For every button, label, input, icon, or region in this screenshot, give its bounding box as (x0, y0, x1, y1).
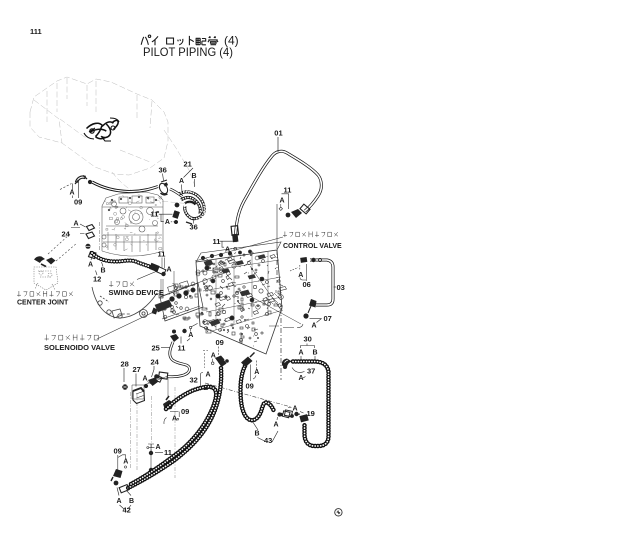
svg-text:A: A (312, 323, 317, 330)
svg-text:11: 11 (213, 237, 221, 246)
svg-text:A: A (167, 267, 172, 274)
svg-text:A: A (172, 415, 177, 422)
svg-text:A: A (188, 332, 193, 339)
svg-text:A: A (165, 219, 170, 226)
svg-text:B: B (313, 350, 318, 357)
svg-text:09: 09 (216, 338, 224, 347)
svg-text:A: A (88, 262, 93, 269)
svg-text:25: 25 (152, 344, 160, 353)
svg-text:111: 111 (30, 27, 42, 36)
svg-text:A: A (179, 178, 184, 185)
svg-text:28: 28 (121, 360, 129, 369)
svg-text:09: 09 (74, 198, 82, 207)
svg-text:12: 12 (93, 275, 101, 284)
svg-text:B: B (204, 385, 209, 392)
svg-text:36: 36 (159, 166, 167, 175)
svg-text:B: B (129, 498, 134, 505)
svg-text:30: 30 (304, 335, 312, 344)
svg-text:09: 09 (181, 407, 189, 416)
svg-text:A: A (274, 422, 279, 429)
svg-text:A: A (225, 247, 230, 254)
svg-text:CENTER JOINT: CENTER JOINT (17, 299, 69, 306)
svg-text:32: 32 (190, 376, 198, 385)
svg-text:06: 06 (303, 280, 311, 289)
svg-text:A: A (254, 369, 259, 376)
svg-text:24: 24 (151, 358, 160, 367)
svg-text:07: 07 (324, 314, 332, 323)
svg-text:A: A (299, 375, 304, 382)
svg-text:CONTROL VALVE: CONTROL VALVE (283, 243, 342, 250)
svg-text:11: 11 (151, 210, 159, 219)
svg-text:A: A (70, 190, 75, 197)
svg-text:37: 37 (307, 367, 315, 376)
svg-text:03: 03 (337, 283, 345, 292)
svg-text:PILOT PIPING (4): PILOT PIPING (4) (143, 45, 233, 59)
svg-text:36: 36 (190, 223, 198, 232)
svg-text:A: A (74, 221, 79, 228)
svg-text:A: A (143, 376, 148, 383)
svg-text:A: A (299, 350, 304, 357)
svg-text:09: 09 (246, 382, 254, 391)
svg-text:A: A (293, 406, 298, 413)
svg-text:A: A (123, 459, 128, 466)
svg-text:B: B (101, 268, 106, 275)
svg-text:11: 11 (178, 344, 186, 353)
svg-text:19: 19 (307, 409, 315, 418)
svg-text:24: 24 (62, 230, 71, 239)
svg-text:27: 27 (133, 365, 141, 374)
svg-text:A: A (156, 444, 161, 451)
svg-text:A: A (280, 197, 285, 204)
svg-text:A: A (206, 372, 211, 379)
svg-text:11: 11 (164, 448, 172, 457)
svg-text:09: 09 (114, 447, 122, 456)
svg-text:11: 11 (284, 186, 292, 195)
svg-text:B: B (255, 431, 260, 438)
svg-text:B: B (192, 173, 197, 180)
svg-text:A: A (117, 498, 122, 505)
svg-text:A: A (298, 272, 303, 279)
svg-text:A: A (211, 353, 216, 360)
svg-text:01: 01 (274, 129, 282, 138)
svg-text:11: 11 (158, 250, 166, 259)
svg-text:21: 21 (184, 160, 192, 169)
svg-text:SOLENOIDO VALVE: SOLENOIDO VALVE (44, 343, 115, 352)
svg-text:SWING DEVICE: SWING DEVICE (109, 288, 164, 297)
svg-text:43: 43 (264, 436, 272, 445)
